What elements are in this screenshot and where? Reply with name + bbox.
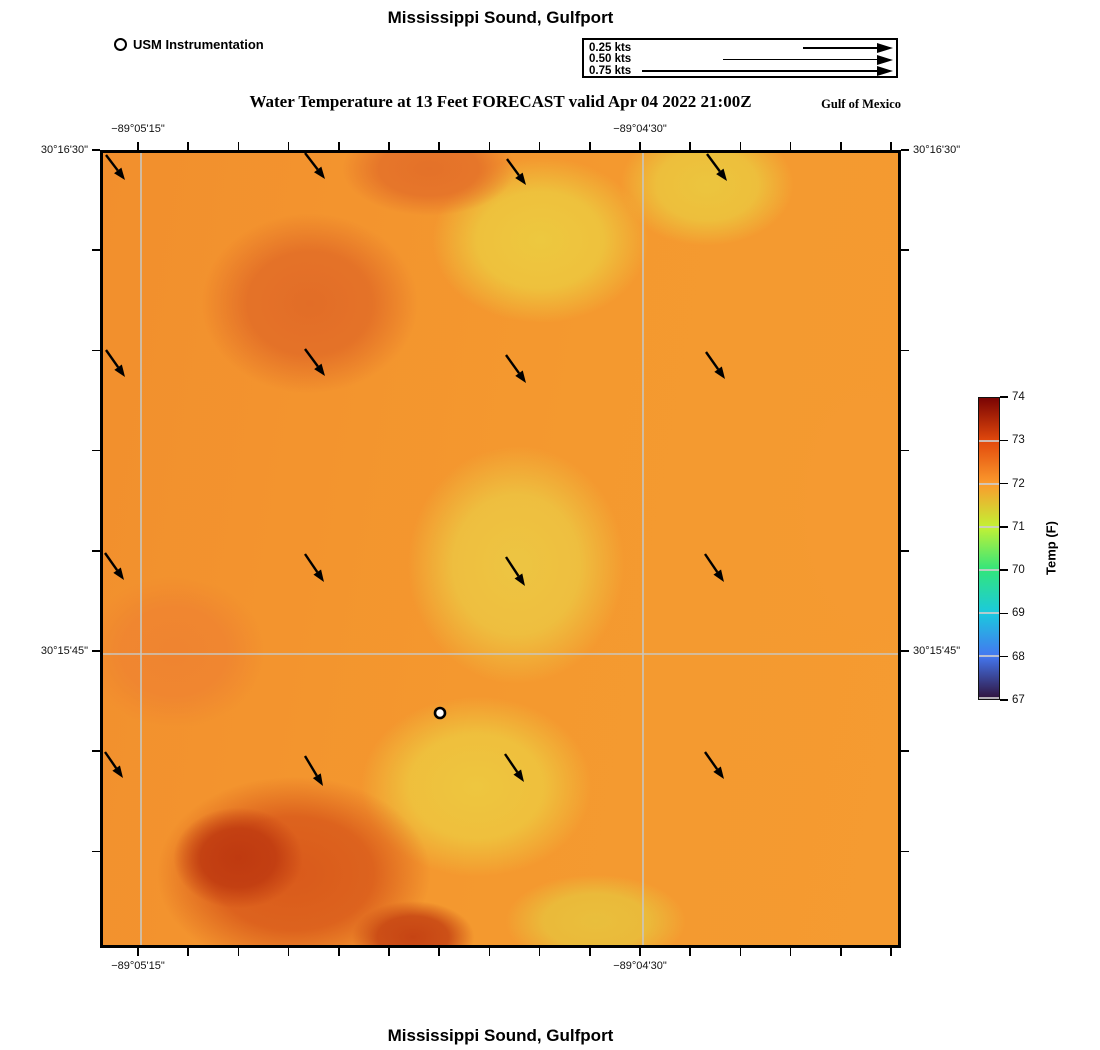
current-arrow-shaft [305, 349, 318, 366]
colorbar-tick-label: 69 [1012, 607, 1025, 619]
axis-tick [539, 142, 541, 150]
axis-tick [438, 142, 440, 150]
axis-tick [790, 142, 792, 150]
current-arrow-shaft [305, 153, 318, 169]
axis-tick [388, 142, 390, 150]
axis-tick [92, 249, 100, 251]
axis-tick [489, 948, 491, 956]
axis-tick [92, 750, 100, 752]
axis-tick [92, 550, 100, 552]
colorbar-tick-label: 67 [1012, 694, 1025, 706]
scale-arrow-head [877, 55, 893, 65]
axis-tick [92, 650, 100, 652]
colorbar-tick-label: 73 [1012, 434, 1025, 446]
colorbar-tick-label: 68 [1012, 651, 1025, 663]
axis-tick [901, 550, 909, 552]
current-arrow-head [713, 767, 724, 779]
axis-tick [639, 948, 641, 956]
current-arrow-head [114, 365, 125, 377]
current-arrow-shaft [305, 554, 317, 572]
scale-arrow-head [877, 43, 893, 53]
axis-tick [901, 650, 909, 652]
scale-arrow-shaft [642, 70, 879, 72]
region-label: Gulf of Mexico [100, 97, 901, 112]
axis-tick [92, 350, 100, 352]
axis-tick [238, 948, 240, 956]
colorbar-unit-line [979, 483, 999, 485]
scale-arrow-shaft [803, 47, 879, 49]
colorbar [978, 397, 1000, 700]
axis-tick [137, 948, 139, 956]
axis-tick [1000, 699, 1008, 701]
footer-title: Mississippi Sound, Gulfport [100, 1026, 901, 1046]
lat-label-left: 30°16'30" [41, 144, 88, 156]
lat-label-left: 30°15'45" [41, 645, 88, 657]
current-arrow-shaft [106, 350, 118, 367]
current-arrow-shaft [507, 159, 519, 175]
current-arrow-head [112, 766, 123, 778]
axis-tick [288, 948, 290, 956]
axis-tick [1000, 526, 1008, 528]
axis-tick [901, 851, 909, 853]
current-arrow-shaft [706, 352, 718, 369]
axis-tick [187, 142, 189, 150]
current-arrow-head [113, 568, 124, 580]
axis-tick [901, 350, 909, 352]
axis-tick [689, 948, 691, 956]
current-arrow-shaft [105, 553, 117, 570]
axis-tick [338, 142, 340, 150]
scale-arrow-label: 0.50 kts [589, 54, 631, 65]
colorbar-gradient [979, 398, 999, 699]
current-arrow-head [313, 773, 323, 786]
axis-tick [901, 149, 909, 151]
station-legend: USM Instrumentation [114, 37, 264, 52]
scale-box: 0.25 kts0.50 kts0.75 kts [582, 38, 898, 78]
current-arrow-shaft [707, 154, 720, 171]
axis-tick [187, 948, 189, 956]
colorbar-unit-line [979, 569, 999, 571]
current-arrow-head [515, 573, 525, 586]
axis-tick [901, 750, 909, 752]
lat-label-right: 30°15'45" [913, 645, 960, 657]
scale-arrow-label: 0.75 kts [589, 66, 631, 77]
axis-tick [589, 948, 591, 956]
axis-tick [338, 948, 340, 956]
axis-tick [1000, 396, 1008, 398]
colorbar-tick-label: 71 [1012, 521, 1025, 533]
axis-tick [890, 948, 892, 956]
colorbar-tick-label: 72 [1012, 478, 1025, 490]
scale-arrow-label: 0.25 kts [589, 43, 631, 54]
colorbar-unit-line [979, 612, 999, 614]
current-arrow-head [714, 367, 725, 379]
current-arrow-shaft [506, 557, 518, 576]
axis-tick [790, 948, 792, 956]
scale-arrow-shaft [723, 59, 879, 61]
lon-label-bottom: −89°05'15" [111, 960, 165, 972]
current-arrow-head [513, 769, 524, 782]
current-arrow-shaft [105, 752, 116, 768]
axis-tick [92, 450, 100, 452]
axis-tick [840, 948, 842, 956]
axis-tick [489, 142, 491, 150]
axis-tick [1000, 483, 1008, 485]
station-marker-icon [114, 38, 127, 51]
axis-tick [840, 142, 842, 150]
axis-tick [238, 142, 240, 150]
axis-tick [1000, 656, 1008, 658]
axis-tick [288, 142, 290, 150]
current-arrow-shaft [506, 355, 519, 373]
colorbar-tick-label: 70 [1012, 564, 1025, 576]
lat-label-right: 30°16'30" [913, 144, 960, 156]
current-arrow-shaft [705, 752, 717, 769]
colorbar-unit-line [979, 526, 999, 528]
current-arrow-shaft [305, 756, 317, 776]
axis-tick [539, 948, 541, 956]
axis-tick [388, 948, 390, 956]
figure-root: Mississippi Sound, Gulfport USM Instrume… [0, 0, 1100, 1050]
current-arrow-shaft [705, 554, 717, 572]
lon-label-bottom: −89°04'30" [613, 960, 667, 972]
colorbar-unit-line [979, 440, 999, 442]
scale-arrow-head [877, 66, 893, 76]
colorbar-title: Temp (F) [1044, 521, 1059, 575]
station-legend-label: USM Instrumentation [133, 37, 264, 52]
axis-tick [589, 142, 591, 150]
axis-tick [1000, 613, 1008, 615]
axis-tick [92, 851, 100, 853]
colorbar-unit-line [979, 655, 999, 657]
current-arrow-head [313, 569, 324, 582]
colorbar-tick-label: 74 [1012, 391, 1025, 403]
lon-label-top: −89°04'30" [613, 123, 667, 135]
axis-tick [1000, 569, 1008, 571]
axis-tick [901, 450, 909, 452]
current-arrow-shaft [505, 754, 517, 772]
current-arrow-shaft [106, 155, 118, 170]
axis-tick [639, 142, 641, 150]
lon-label-top: −89°05'15" [111, 123, 165, 135]
current-arrow-head [515, 371, 526, 383]
station-marker [435, 708, 445, 718]
colorbar-unit-line [979, 697, 999, 699]
map-svg [103, 153, 898, 945]
current-arrow-head [713, 569, 724, 582]
axis-tick [740, 142, 742, 150]
axis-tick [137, 142, 139, 150]
axis-tick [438, 948, 440, 956]
axis-tick [92, 149, 100, 151]
axis-tick [689, 142, 691, 150]
map-canvas [100, 150, 901, 948]
axis-tick [890, 142, 892, 150]
figure-title: Mississippi Sound, Gulfport [100, 8, 901, 28]
axis-tick [901, 249, 909, 251]
axis-tick [740, 948, 742, 956]
axis-tick [1000, 440, 1008, 442]
